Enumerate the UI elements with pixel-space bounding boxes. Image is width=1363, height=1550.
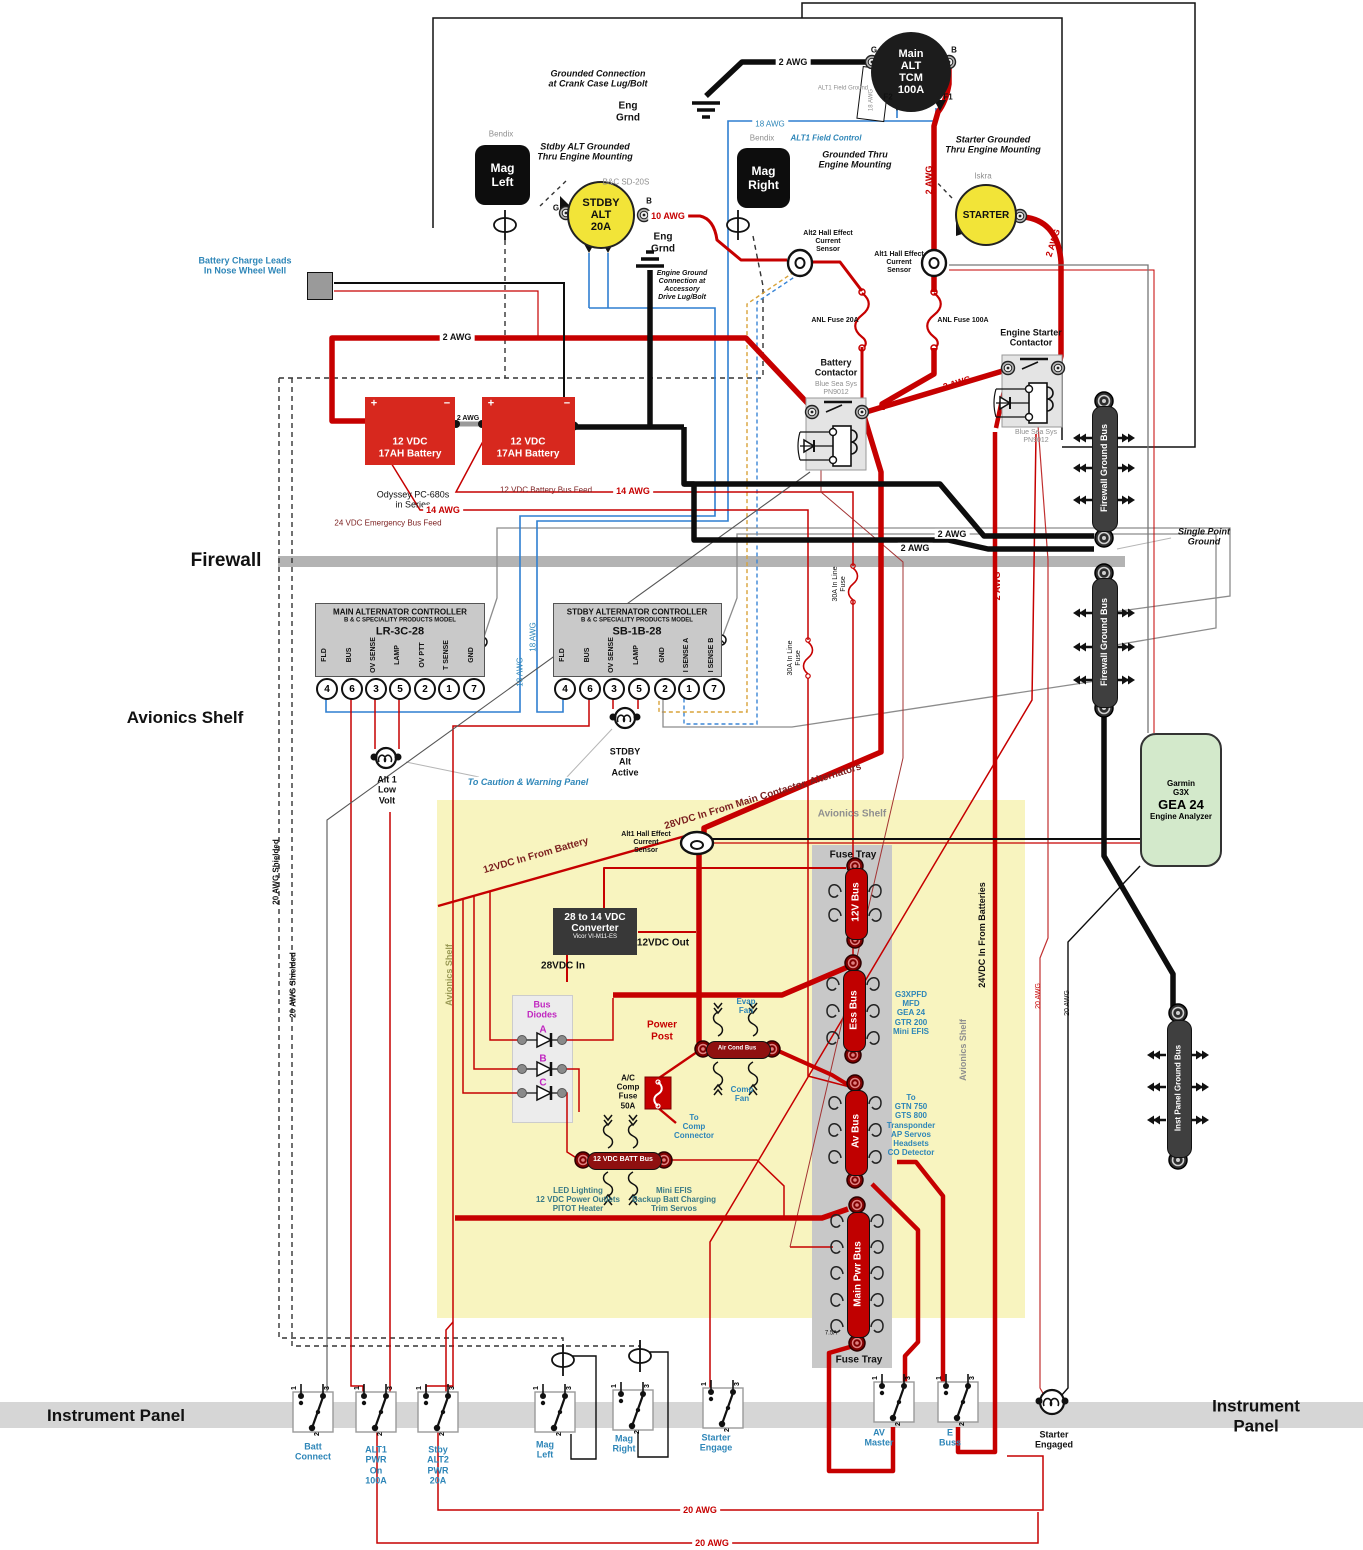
switch-batt-connect[interactable]: 1 3 2	[291, 1384, 335, 1440]
terminal-number: 7	[463, 678, 485, 700]
av-loads-label: To GTN 750 GTS 800 Transponder AP Servos…	[887, 1093, 935, 1157]
fuse-30b-label: 30A In Line Fuse	[787, 632, 803, 684]
awg-batt-link-label: 2 AWG	[457, 415, 479, 423]
dc-converter: 28 to 14 VDC Converter Vicor VI-M11-ES	[553, 908, 637, 955]
stdby-b: B	[646, 196, 652, 205]
stdby-controller-title: STDBY ALTERNATOR CONTROLLER	[567, 607, 707, 616]
terminal-name: OV SENSE	[370, 635, 378, 675]
main-alt-f1: F1	[943, 92, 952, 101]
starter-grounded-note: Starter Grounded Thru Engine Mounting	[945, 135, 1040, 156]
terminal-number: 3	[603, 678, 625, 700]
svg-text:1: 1	[533, 1386, 540, 1390]
converter-in-label: 28VDC In	[541, 960, 585, 972]
engine-ground-note: Engine Ground Connection at Accessory Dr…	[657, 270, 708, 302]
fuse-rating-label: 7.5A	[825, 1331, 837, 1338]
battery-contactor-label: Battery Contactor	[815, 358, 858, 379]
svg-text:1: 1	[416, 1386, 423, 1390]
to-comp-label: To Comp Connector	[674, 1113, 714, 1141]
mag-left: Mag Left	[475, 145, 530, 205]
alt1-hall-top-label: Alt1 Hall Effect Current Sensor	[874, 251, 923, 275]
battery-2-label: 12 VDC 17AH Battery	[497, 437, 560, 460]
svg-text:1: 1	[611, 1384, 618, 1388]
switch-label-alt1: ALT1 PWR On 100A	[365, 1444, 387, 1485]
awg-18-v1-label: 18 AWG	[515, 657, 524, 687]
terminal-number: 4	[554, 678, 576, 700]
in24-label: 24VDC In From Batteries	[977, 860, 987, 1010]
feed-24-label: 24 VDC Emergency Bus Feed	[334, 518, 441, 527]
svg-text:3: 3	[644, 1384, 651, 1388]
battery-1-minus: −	[444, 398, 450, 411]
awg-20-v1-label: 20 AWG	[1035, 983, 1043, 1009]
stdby-active-label: STDBY Alt Active	[610, 746, 641, 777]
terminal-name: BUS	[346, 635, 354, 675]
starter-contactor-brand: Blue Sea Sys PN9012	[1015, 429, 1057, 445]
misc-terminal-symbols	[477, 100, 968, 1376]
gea24-line3: GEA 24	[1158, 797, 1204, 812]
ac-fuse-label: A/C Comp Fuse 50A	[617, 1074, 640, 1111]
ground-power-wires	[575, 62, 1173, 1013]
magright-grounded-note: Grounded Thru Engine Mounting	[819, 150, 892, 171]
main-alt-g: G	[871, 45, 877, 54]
batt-bus-left-loads: LED Lighting 12 VDC Power Outlets PITOT …	[536, 1186, 620, 1214]
evap-fan-label: Evap Fan	[736, 997, 755, 1015]
bus-12v-label: 12V Bus	[850, 867, 862, 937]
svg-text:3: 3	[324, 1386, 331, 1390]
starter: STARTER	[955, 184, 1017, 246]
fw-bus-lower-label: Firewall Ground Bus	[1099, 582, 1109, 702]
svg-text:1: 1	[291, 1386, 298, 1390]
svg-text:1: 1	[936, 1376, 943, 1380]
switch-e-buss[interactable]: 1 3 2	[936, 1374, 980, 1430]
terminal-name: LAMP	[633, 635, 641, 675]
firewall-label: Firewall	[191, 550, 262, 572]
converter-line2: Converter	[553, 923, 637, 934]
battery-2-plus: +	[488, 398, 494, 411]
awg-14a-label: 14 AWG	[613, 486, 653, 496]
converter-line3: Vicor VI-M11-ES	[553, 934, 637, 940]
caution-panel-label: To Caution & Warning Panel	[465, 777, 592, 787]
main-controller-title: MAIN ALTERNATOR CONTROLLER	[333, 607, 467, 616]
awg-20-v2-label: 20 AWG	[1064, 990, 1072, 1016]
main-alt-f2: F2	[883, 92, 892, 101]
battery-1-label: 12 VDC 17AH Battery	[379, 437, 442, 460]
avionics-vert-left-label: Avionics Shelf	[444, 930, 454, 1020]
awg-alt-b-label: 2 AWG	[924, 166, 934, 195]
field-tag-awg: 18 AWG	[869, 89, 876, 111]
alt1-field-control-label: ALT1 Field Control	[791, 133, 862, 142]
eng-grnd-1-label: Eng Grnd	[616, 101, 640, 124]
starter-contactor-label: Engine Starter Contactor	[1000, 328, 1062, 349]
svg-text:2: 2	[634, 1430, 641, 1434]
wiring-diagram: Mag Left Mag Right Main ALT TCM 100A STD…	[0, 0, 1363, 1550]
stdby-grounded-note: Stdby ALT Grounded Thru Engine Mounting	[537, 142, 632, 163]
terminal-number: 7	[703, 678, 725, 700]
diode-b-label: B	[539, 1053, 546, 1065]
terminal-name: OV PTT	[419, 635, 427, 675]
main-alt-b: B	[951, 45, 957, 54]
instrument-panel-left-label: Instrument Panel	[47, 1406, 185, 1426]
bus-main-pwr-label: Main Pwr Bus	[852, 1214, 864, 1334]
terminal-number: 5	[389, 678, 411, 700]
awg-fw1-label: 2 AWG	[935, 529, 970, 539]
batt-bus-right-loads: Mini EFIS Backup Batt Charging Trim Serv…	[632, 1186, 716, 1214]
switch-av-master[interactable]: 1 3 2	[872, 1374, 916, 1430]
fuse-30a-label: 30A In Line Fuse	[832, 558, 848, 610]
fuse-tray-bottom-label: Fuse Tray	[836, 1354, 883, 1366]
shielded-2-label: 20 AWG Shielded	[288, 940, 297, 1030]
iskra-brand: Iskra	[974, 171, 991, 180]
stdby-brand: B&C SD-20S	[603, 177, 650, 186]
awg-14b-label: 14 AWG	[423, 505, 463, 515]
awg-10-label: 10 AWG	[648, 211, 688, 221]
battery-1-plus: +	[371, 398, 377, 411]
svg-text:3: 3	[449, 1386, 456, 1390]
air-cond-bus-label: Air Cond Bus	[718, 1046, 756, 1053]
feed-12-label: 12 VDC Battery Bus Feed	[500, 485, 592, 494]
mag-right: Mag Right	[737, 148, 790, 208]
svg-text:3: 3	[387, 1386, 394, 1390]
diode-c-label: C	[539, 1077, 546, 1089]
terminal-name: GND	[468, 635, 476, 675]
svg-text:2: 2	[314, 1432, 321, 1436]
terminal-number: 2	[414, 678, 436, 700]
terminal-name: BUS	[584, 635, 592, 675]
main-controller-subtitle: B & C SPECIALITY PRODUCTS MODEL	[344, 618, 456, 625]
bus-diode-symbols	[518, 1033, 567, 1100]
converter-out-label: 12VDC Out	[637, 937, 689, 949]
switch-label-av-master: AV Master	[864, 1428, 893, 1449]
svg-text:2: 2	[377, 1432, 384, 1436]
eng-grnd-2-label: Eng Grnd	[651, 232, 675, 255]
switch-label-stby: Stby ALT2 PWR 20A	[427, 1444, 449, 1485]
terminal-number: 1	[678, 678, 700, 700]
svg-text:2: 2	[724, 1428, 731, 1432]
avionics-shelf-top-label: Avionics Shelf	[818, 808, 887, 820]
svg-text:1: 1	[701, 1382, 708, 1386]
gea24-line1: Garmin	[1167, 779, 1195, 788]
svg-text:3: 3	[905, 1376, 912, 1380]
switch-mag-right[interactable]: 1 3 2	[611, 1382, 655, 1438]
switch-label-e-buss: E Buss	[939, 1428, 961, 1449]
bus-diodes-title: Bus Diodes	[527, 1000, 557, 1021]
single-point-ground-label: Single Point Ground	[1178, 527, 1230, 548]
ac-comp-fuse-symbol	[645, 1077, 671, 1109]
converter-line1: 28 to 14 VDC	[553, 912, 637, 923]
alt1-field-ground-note: ALT1 Field Ground	[818, 86, 868, 93]
awg-20-b1-label: 20 AWG	[680, 1505, 720, 1515]
switch-label-mag-left: Mag Left	[536, 1440, 554, 1461]
awg-crank-label: 2 AWG	[776, 57, 811, 67]
terminal-number: 3	[365, 678, 387, 700]
svg-text:3: 3	[969, 1376, 976, 1380]
starter-engaged-label: Starter Engaged	[1035, 1430, 1073, 1451]
bendix-left: Bendix	[489, 129, 513, 138]
svg-text:1: 1	[354, 1386, 361, 1390]
fuse-tray-top-label: Fuse Tray	[830, 849, 877, 861]
red-signal-wires	[334, 270, 1154, 1543]
terminal-name: T SENSE	[443, 635, 451, 675]
battery-2-minus: −	[564, 398, 570, 411]
ess-loads-label: G3XPFD MFD GEA 24 GTR 200 Mini EFIS	[893, 990, 929, 1036]
awg-vert-label: 2 AWG	[992, 572, 1002, 601]
awg-20-b2-label: 20 AWG	[692, 1538, 732, 1548]
svg-text:2: 2	[439, 1432, 446, 1436]
switch-alt1-pwr[interactable]: 1 3 2	[354, 1384, 398, 1440]
gea24: Garmin G3X GEA 24 Engine Analyzer	[1140, 733, 1222, 867]
charge-leads-label: Battery Charge Leads In Nose Wheel Well	[198, 256, 291, 277]
terminal-name: OV SENSE	[608, 635, 616, 675]
gea24-line4: Engine Analyzer	[1150, 812, 1212, 821]
svg-text:2: 2	[959, 1422, 966, 1426]
switch-starter-engage[interactable]: 1 3 2	[701, 1380, 745, 1436]
alt1-hall-shelf-label: Alt1 Hall Effect Current Sensor	[621, 831, 670, 855]
terminal-name: LAMP	[394, 635, 402, 675]
instrument-panel-right-label: Instrument Panel	[1203, 1396, 1310, 1435]
awg-18-v2-label: 18 AWG	[528, 622, 537, 652]
batt-bus-label: 12 VDC BATT Bus	[593, 1156, 653, 1164]
terminal-number: 6	[341, 678, 363, 700]
terminal-name: I SENSE B	[708, 635, 716, 675]
avionics-vert-right-label: Avionics Shelf	[958, 1005, 968, 1095]
stdby-alt: STDBY ALT 20A	[567, 181, 635, 249]
gea24-line2: G3X	[1173, 788, 1189, 797]
stdby-controller-subtitle: B & C SPECIALITY PRODUCTS MODEL	[581, 618, 693, 625]
diode-a-label: A	[539, 1024, 546, 1036]
inst-bus-label: Inst Panel Ground Bus	[1173, 1023, 1182, 1153]
anl-100-label: ANL Fuse 100A	[937, 317, 988, 325]
awg-fw2-label: 2 AWG	[898, 543, 933, 553]
terminal-name: FLD	[321, 635, 329, 675]
terminal-number: 6	[579, 678, 601, 700]
switch-mag-left[interactable]: 1 3 2	[533, 1384, 577, 1440]
anl-20-label: ANL Fuse 20A	[811, 317, 858, 325]
svg-text:1: 1	[872, 1376, 879, 1380]
svg-text:3: 3	[566, 1386, 573, 1390]
battery-contactor-brand: Blue Sea Sys PN9012	[815, 381, 857, 397]
bus-av-label: Av Bus	[850, 1091, 862, 1171]
bendix-right: Bendix	[750, 133, 774, 142]
awg-18-label: 18 AWG	[752, 119, 788, 128]
switch-stby-alt2[interactable]: 1 3 2	[416, 1384, 460, 1440]
stdby-g: G	[553, 203, 559, 212]
avionics-shelf-left-label: Avionics Shelf	[127, 708, 244, 728]
terminal-name: FLD	[559, 635, 567, 675]
grounded-connection-note: Grounded Connection at Crank Case Lug/Bo…	[548, 69, 647, 90]
bus-ess-label: Ess Bus	[848, 972, 860, 1048]
terminal-number: 5	[628, 678, 650, 700]
svg-text:2: 2	[556, 1432, 563, 1436]
alt1-low-volt-label: Alt 1 Low Volt	[377, 774, 397, 805]
power-post-label: Power Post	[647, 1020, 677, 1043]
shielded-1-label: 20 AWG Shielded	[271, 827, 280, 917]
svg-text:3: 3	[734, 1382, 741, 1386]
terminal-number: 1	[438, 678, 460, 700]
terminal-name: I SENSE A	[683, 635, 691, 675]
comp-fan-label: Comp Fan	[731, 1085, 754, 1103]
svg-text:2: 2	[895, 1422, 902, 1426]
terminal-number: 4	[316, 678, 338, 700]
awg-batt-label: 2 AWG	[440, 332, 475, 342]
terminal-number: 2	[654, 678, 676, 700]
alt2-hall-label: Alt2 Hall Effect Current Sensor	[803, 230, 852, 254]
switch-label-batt-connect: Batt Connect	[295, 1442, 331, 1463]
charge-connector	[307, 272, 333, 300]
terminal-name: GND	[659, 635, 667, 675]
fw-bus-upper-label: Firewall Ground Bus	[1099, 408, 1109, 528]
